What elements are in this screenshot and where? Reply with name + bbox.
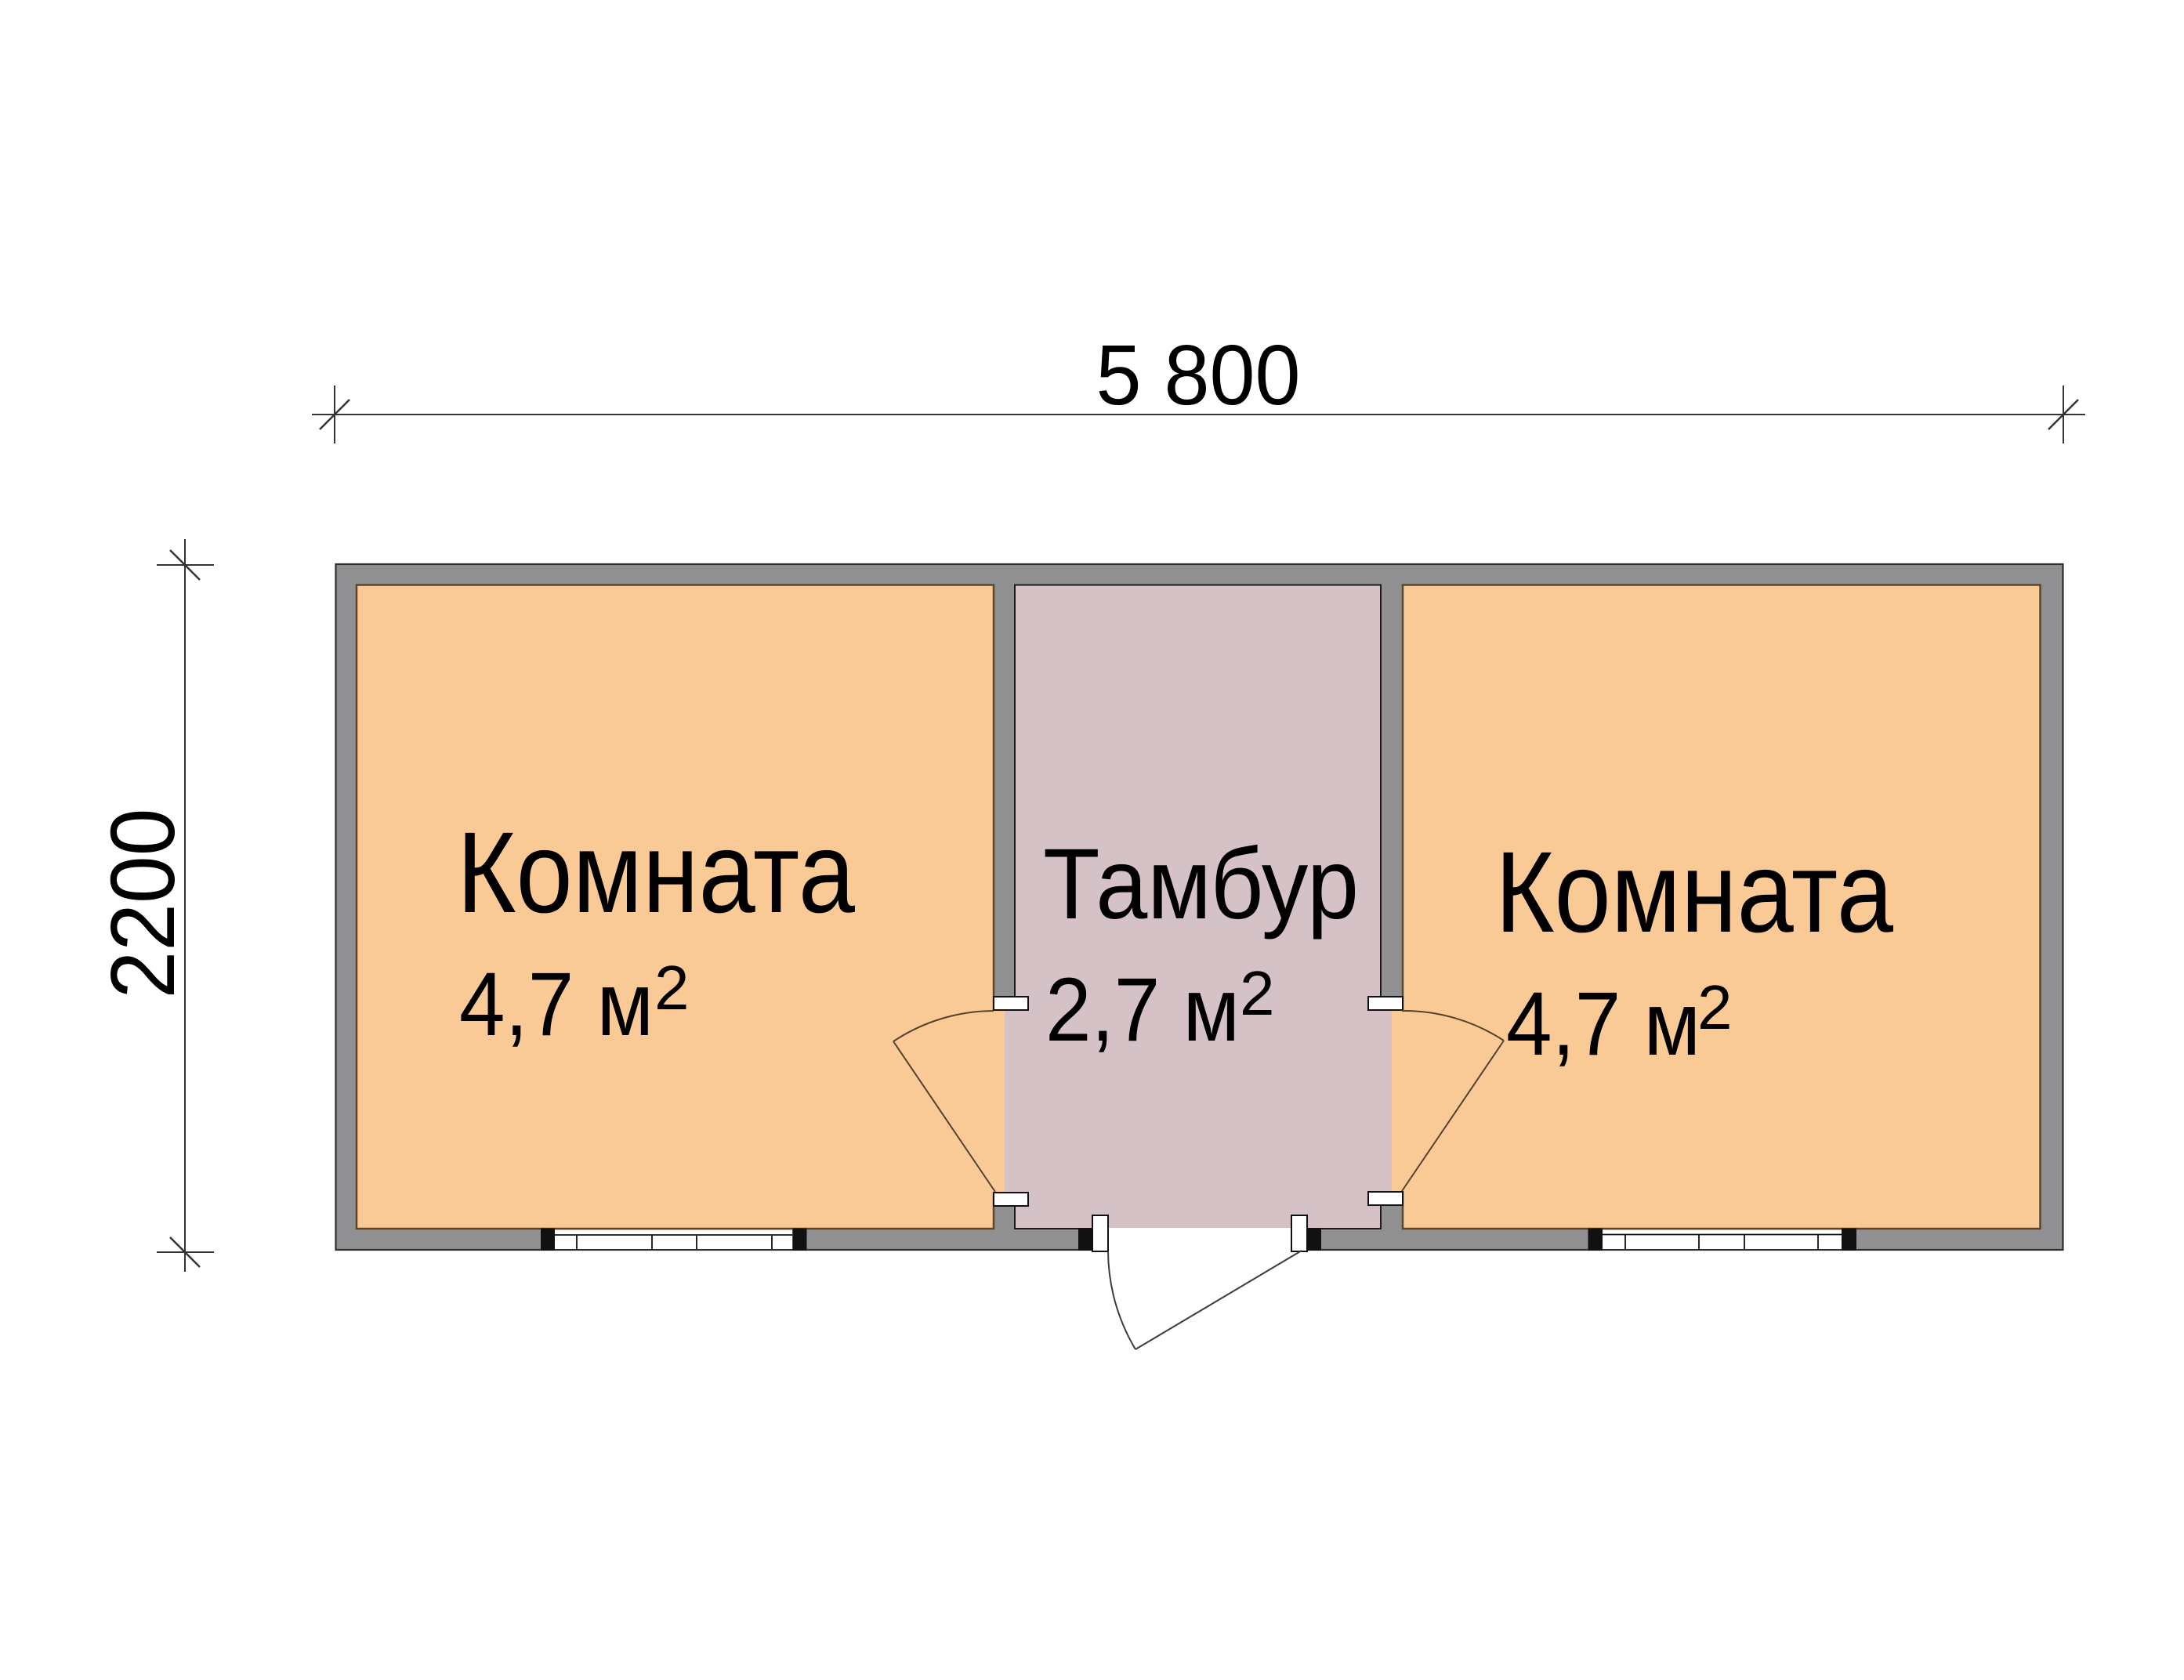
- svg-text:2: 2: [1240, 958, 1275, 1028]
- svg-text:2200: 2200: [92, 809, 194, 999]
- svg-text:4,7 м: 4,7 м: [1506, 974, 1700, 1074]
- svg-text:Тамбур: Тамбур: [1043, 828, 1359, 940]
- svg-text:2: 2: [1697, 972, 1733, 1042]
- svg-text:2,7 м: 2,7 м: [1045, 960, 1240, 1060]
- svg-text:2: 2: [654, 953, 690, 1023]
- svg-text:Комната: Комната: [457, 809, 855, 937]
- svg-text:4,7 м: 4,7 м: [459, 954, 654, 1055]
- svg-text:Комната: Комната: [1495, 828, 1893, 957]
- svg-text:5 800: 5 800: [1096, 328, 1301, 423]
